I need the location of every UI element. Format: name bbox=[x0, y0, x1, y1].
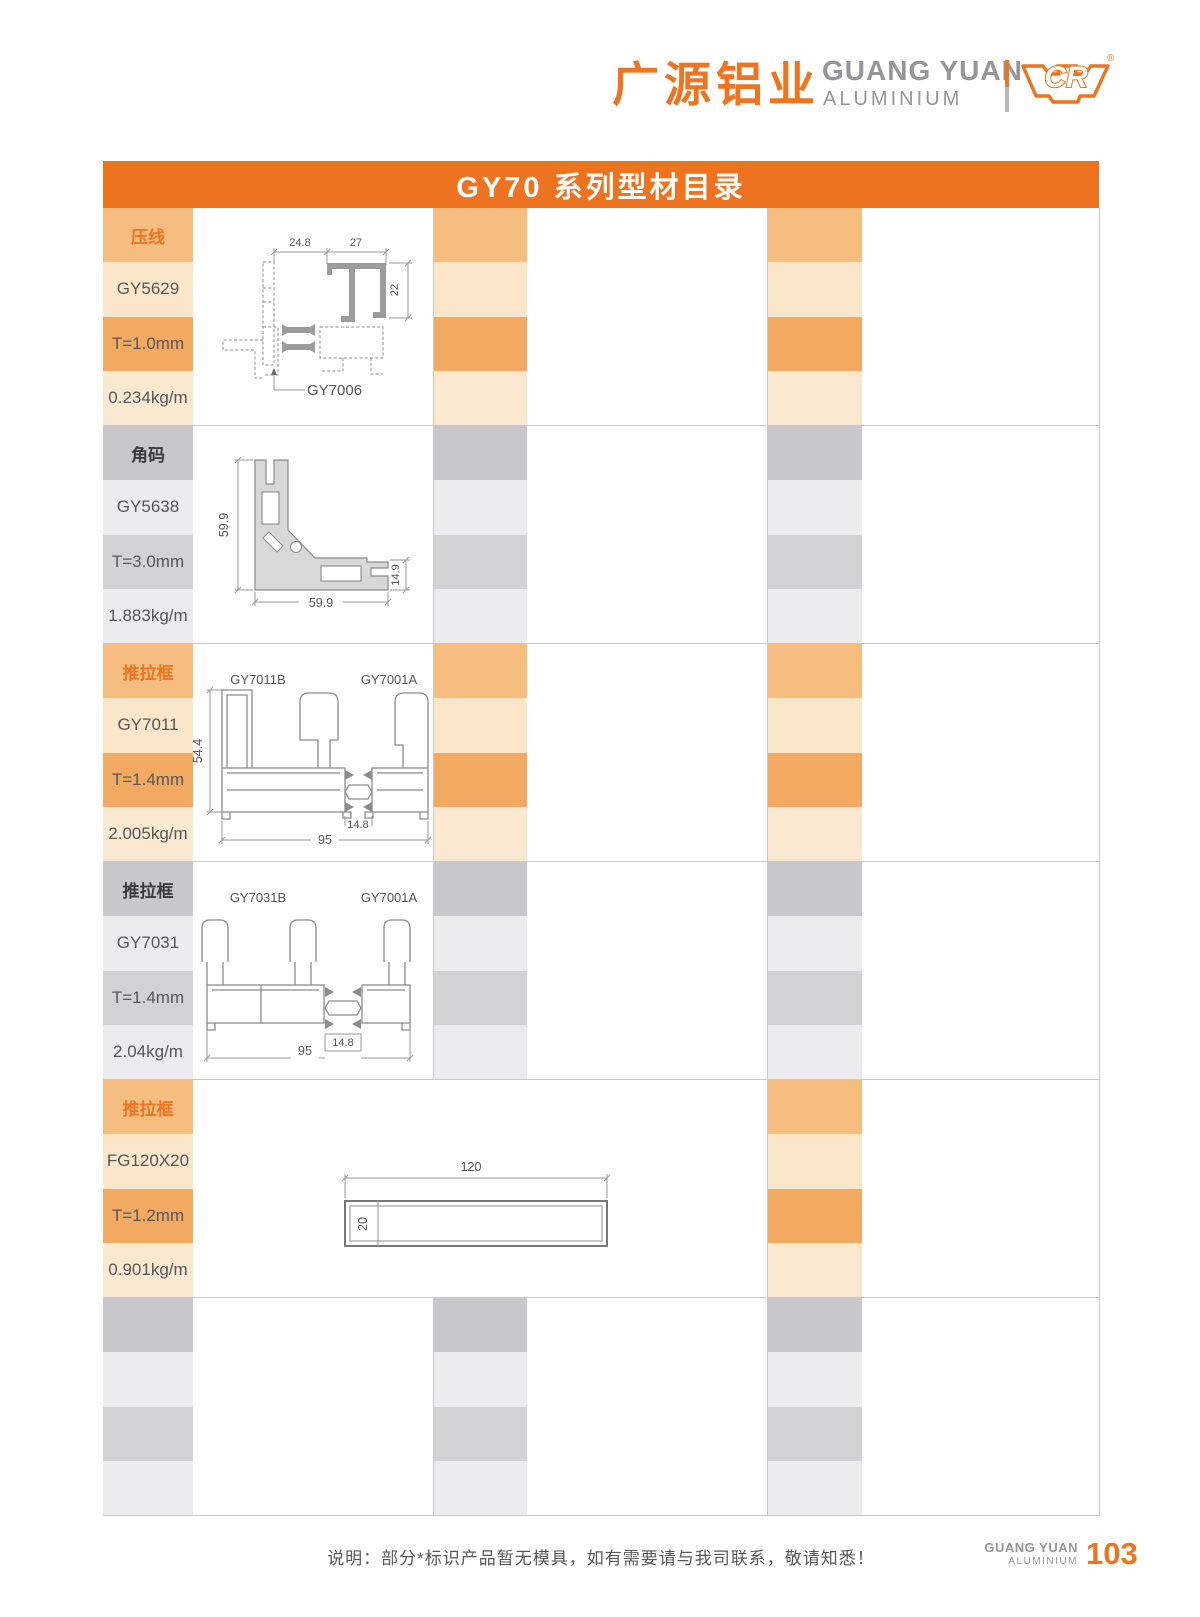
empty-labels-mid bbox=[433, 208, 527, 425]
callout-label: GY7006 bbox=[307, 382, 362, 399]
empty-diagram bbox=[862, 1298, 1099, 1515]
product-block-gy7011: 推拉框 GY7011 T=1.4mm 2.005kg/m GY7011B GY7… bbox=[103, 644, 1099, 862]
empty-labels-right bbox=[767, 1298, 862, 1515]
dim-label: 27 bbox=[350, 237, 362, 249]
thickness-cell: T=3.0mm bbox=[103, 535, 193, 589]
brand-subtitle: ALUMINIUM bbox=[823, 88, 962, 111]
empty-diagram bbox=[527, 862, 767, 1079]
category-cell: 推拉框 bbox=[103, 862, 193, 916]
thickness-cell: T=1.0mm bbox=[103, 317, 193, 371]
diagram-gy5629: 24.8 27 22 GY7006 bbox=[193, 208, 433, 425]
empty-diagram bbox=[193, 1298, 433, 1515]
brand-divider bbox=[1005, 60, 1009, 112]
model-cell: GY5629 bbox=[103, 262, 193, 316]
company-logo-icon: CR ® bbox=[1018, 48, 1114, 114]
footer-note: 说明：部分*标识产品暂无模具，如有需要请与我司联系，敬请知悉！ bbox=[103, 1544, 1099, 1569]
model-cell: FG120X20 bbox=[103, 1134, 193, 1188]
empty-diagram bbox=[527, 644, 767, 861]
product-block-gy5629: 压线 GY5629 T=1.0mm 0.234kg/m 24.8 27 22 bbox=[103, 208, 1099, 426]
empty-diagram bbox=[527, 1298, 767, 1515]
empty-diagram bbox=[862, 426, 1099, 643]
part-label: GY7031B bbox=[230, 890, 286, 905]
empty-labels-right bbox=[767, 862, 862, 1079]
product-block-gy7031: 推拉框 GY7031 T=1.4mm 2.04kg/m GY7031B GY70… bbox=[103, 862, 1099, 1080]
brand-english-name: GUANG YUAN bbox=[822, 55, 1023, 87]
dim-label: 95 bbox=[298, 1044, 312, 1058]
category-cell: 角码 bbox=[103, 426, 193, 480]
catalog-page: 广源铝业 GUANG YUAN ALUMINIUM CR ® GY70 系列型材… bbox=[0, 0, 1200, 1617]
dim-label: 20 bbox=[356, 1217, 370, 1231]
product-labels: 压线 GY5629 T=1.0mm 0.234kg/m bbox=[103, 208, 193, 425]
dim-label: 14.9 bbox=[390, 564, 402, 585]
weight-cell: 2.04kg/m bbox=[103, 1025, 193, 1079]
category-cell: 推拉框 bbox=[103, 644, 193, 698]
weight-cell: 0.901kg/m bbox=[103, 1243, 193, 1297]
dim-label: 22 bbox=[389, 284, 401, 296]
category-cell: 压线 bbox=[103, 208, 193, 262]
product-labels: 推拉框 FG120X20 T=1.2mm 0.901kg/m bbox=[103, 1080, 193, 1297]
diagram-gy7031: GY7031B GY7001A 14.8 95 bbox=[193, 862, 433, 1079]
part-label: GY7011B bbox=[230, 672, 285, 687]
empty-labels-right bbox=[767, 426, 862, 643]
model-cell: GY5638 bbox=[103, 480, 193, 534]
product-labels: 角码 GY5638 T=3.0mm 1.883kg/m bbox=[103, 426, 193, 643]
footer-brand-sub: ALUMINIUM bbox=[978, 1556, 1078, 1568]
page-title: GY70 系列型材目录 bbox=[103, 161, 1099, 208]
dim-label: 95 bbox=[318, 833, 332, 847]
thickness-cell: T=1.4mm bbox=[103, 971, 193, 1025]
diagram-gy7011: GY7011B GY7001A 54.4 14.8 bbox=[193, 644, 433, 861]
empty-labels-mid bbox=[433, 1298, 527, 1515]
empty-diagram bbox=[527, 426, 767, 643]
product-labels: 推拉框 GY7031 T=1.4mm 2.04kg/m bbox=[103, 862, 193, 1079]
empty-labels-right bbox=[767, 1080, 862, 1297]
diagram-fg120x20: 120 20 bbox=[193, 1080, 767, 1297]
catalog-table: 压线 GY5629 T=1.0mm 0.234kg/m 24.8 27 22 bbox=[103, 208, 1100, 1516]
logo-cr-text: CR bbox=[1044, 61, 1088, 94]
dim-label: 14.8 bbox=[347, 819, 368, 831]
empty-labels-right bbox=[767, 644, 862, 861]
empty-diagram bbox=[527, 208, 767, 425]
part-label: GY7001A bbox=[361, 890, 418, 905]
dim-label: 59.9 bbox=[309, 596, 333, 610]
diagram-gy5638: 59.9 59.9 14.9 bbox=[193, 426, 433, 643]
brand-chinese-name: 广源铝业 bbox=[612, 46, 820, 115]
page-number: 103 bbox=[1086, 1536, 1138, 1572]
empty-labels-mid bbox=[433, 862, 527, 1079]
model-cell: GY7031 bbox=[103, 916, 193, 970]
thickness-cell: T=1.4mm bbox=[103, 753, 193, 807]
empty-labels-mid bbox=[433, 644, 527, 861]
dim-label: 54.4 bbox=[193, 739, 205, 763]
footer-brand: GUANG YUAN ALUMINIUM bbox=[978, 1541, 1078, 1567]
dim-label: 120 bbox=[461, 1160, 482, 1174]
empty-diagram bbox=[862, 862, 1099, 1079]
dim-label: 14.8 bbox=[332, 1037, 353, 1049]
empty-diagram bbox=[862, 1080, 1099, 1297]
model-cell: GY7011 bbox=[103, 698, 193, 752]
empty-diagram bbox=[862, 644, 1099, 861]
registered-mark: ® bbox=[1107, 53, 1114, 64]
empty-labels-mid bbox=[433, 426, 527, 643]
weight-cell: 0.234kg/m bbox=[103, 371, 193, 425]
product-block-fg120x20: 推拉框 FG120X20 T=1.2mm 0.901kg/m 120 20 bbox=[103, 1080, 1099, 1298]
category-cell: 推拉框 bbox=[103, 1080, 193, 1134]
product-labels: 推拉框 GY7011 T=1.4mm 2.005kg/m bbox=[103, 644, 193, 861]
weight-cell: 2.005kg/m bbox=[103, 807, 193, 861]
empty-product-block bbox=[103, 1298, 1099, 1516]
thickness-cell: T=1.2mm bbox=[103, 1189, 193, 1243]
empty-labels bbox=[103, 1298, 193, 1515]
empty-labels-right bbox=[767, 208, 862, 425]
product-block-gy5638: 角码 GY5638 T=3.0mm 1.883kg/m 59.9 59.9 bbox=[103, 426, 1099, 644]
dim-label: 24.8 bbox=[289, 237, 310, 249]
dim-label: 59.9 bbox=[217, 513, 231, 537]
weight-cell: 1.883kg/m bbox=[103, 589, 193, 643]
empty-diagram bbox=[862, 208, 1099, 425]
part-label: GY7001A bbox=[361, 672, 418, 687]
footer-brand-en: GUANG YUAN bbox=[978, 1541, 1078, 1556]
